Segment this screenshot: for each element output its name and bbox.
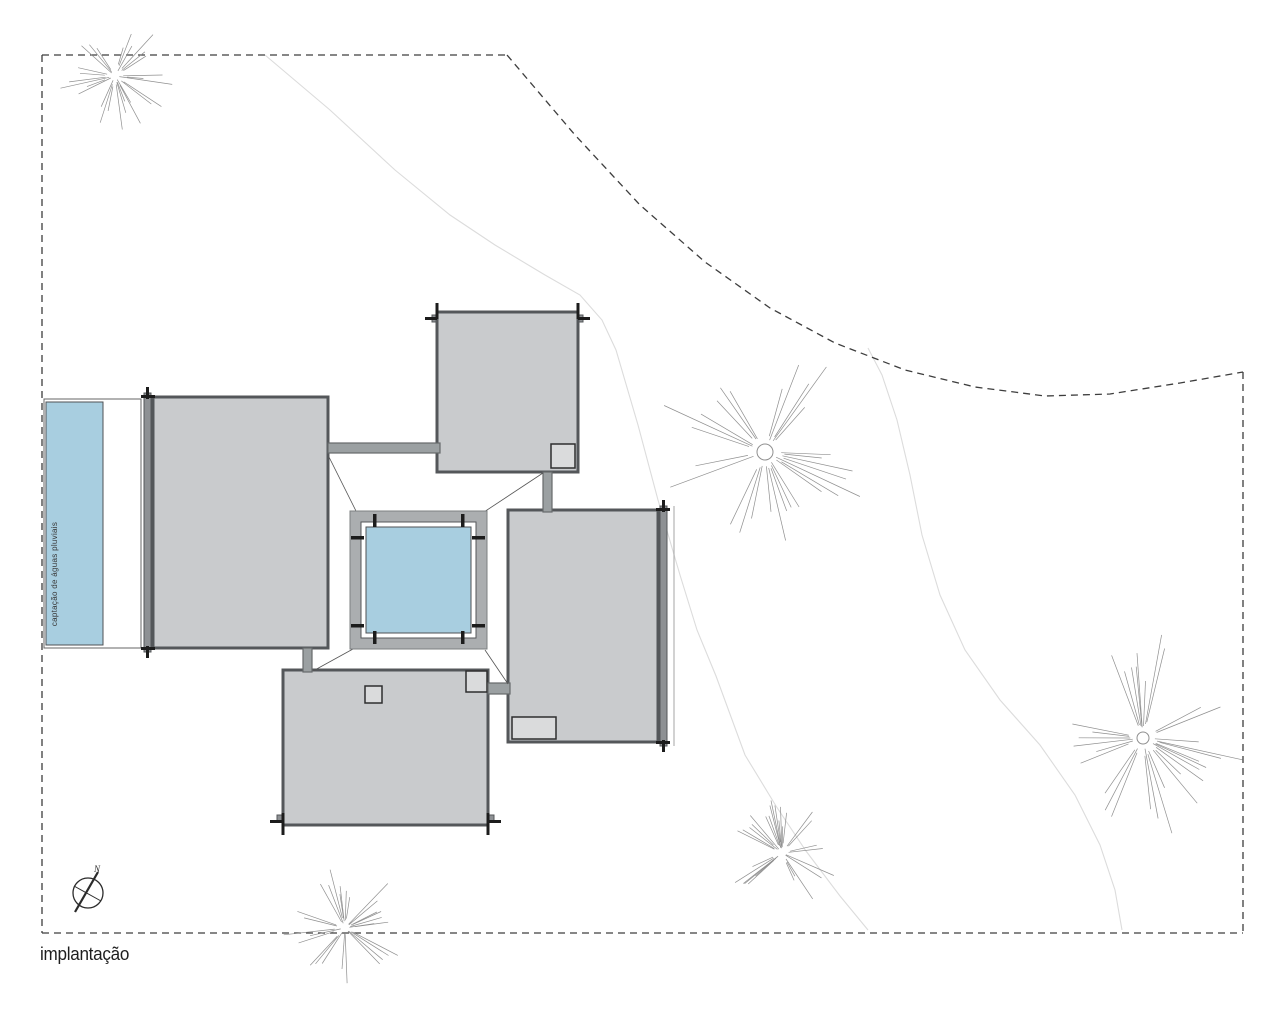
tree-frond xyxy=(790,845,817,851)
tree-frond xyxy=(123,75,162,76)
tree-frond xyxy=(1155,744,1206,768)
tree-frond xyxy=(720,388,756,439)
pool-post xyxy=(373,514,377,527)
tree-frond xyxy=(82,46,112,73)
tree-trunk xyxy=(757,444,773,460)
tree-frond xyxy=(299,932,334,943)
tree-frond xyxy=(730,469,756,524)
tree-frond xyxy=(349,931,383,960)
walkway xyxy=(328,443,440,453)
pool-post xyxy=(351,536,364,540)
building-roof xyxy=(508,510,658,742)
roof-edge-line xyxy=(329,457,356,511)
roof-beam xyxy=(660,506,667,746)
column-post xyxy=(487,813,490,835)
tree-frond xyxy=(348,931,380,964)
tree-frond xyxy=(1156,707,1201,731)
site-plan-drawing: captação de águas pluviais N xyxy=(0,0,1280,1024)
walkway xyxy=(488,683,510,694)
tree-frond xyxy=(701,414,753,445)
tree-frond xyxy=(355,922,388,926)
tree-frond xyxy=(670,456,753,487)
tree-frond xyxy=(100,84,112,122)
pool-post xyxy=(351,624,364,628)
pool-post xyxy=(461,631,465,644)
tree-frond xyxy=(1146,635,1162,724)
tree-frond xyxy=(322,933,342,964)
tree-frond xyxy=(752,466,763,519)
skylight-square xyxy=(466,671,487,692)
tree xyxy=(1072,635,1242,833)
tree xyxy=(664,365,860,541)
tree-frond xyxy=(353,932,398,956)
walkway xyxy=(543,472,552,512)
tree-frond xyxy=(345,934,347,983)
column-post xyxy=(146,646,149,658)
tree-frond xyxy=(1105,749,1137,811)
tree-frond xyxy=(119,77,172,85)
tree-frond xyxy=(743,830,775,849)
tree-frond xyxy=(782,826,783,847)
column-post xyxy=(146,387,149,399)
pool-post xyxy=(373,631,377,644)
tree-frond xyxy=(769,468,786,541)
tree-frond xyxy=(121,81,151,104)
building-roof xyxy=(283,670,488,825)
boundary-curve xyxy=(507,55,1243,396)
tree-frond xyxy=(738,831,775,849)
tree-frond xyxy=(664,406,752,447)
pool-post xyxy=(461,514,465,527)
column-post xyxy=(270,820,284,823)
column-post xyxy=(282,813,285,835)
tree-frond xyxy=(1156,747,1203,781)
skylight-square xyxy=(512,717,556,739)
tree-frond xyxy=(1148,754,1172,833)
column-post xyxy=(662,740,665,752)
building-pavilion-west xyxy=(141,387,328,658)
building-pavilion-east xyxy=(508,500,674,752)
tree-frond xyxy=(769,816,780,846)
tree-frond xyxy=(1144,681,1146,726)
tree-frond xyxy=(1105,750,1135,793)
tree-frond xyxy=(786,859,813,899)
plan-title: implantação xyxy=(40,944,129,965)
tree-frond xyxy=(696,455,748,465)
tree-frond xyxy=(345,891,346,920)
tree-frond xyxy=(717,401,752,439)
north-compass xyxy=(73,872,103,912)
column-post xyxy=(578,317,590,320)
tree-frond xyxy=(1156,743,1199,761)
pool-post xyxy=(472,624,485,628)
tree xyxy=(284,870,398,984)
column-post xyxy=(436,303,439,319)
tree-frond xyxy=(1147,649,1165,723)
tree-frond xyxy=(773,367,826,441)
tree-frond xyxy=(770,365,799,440)
tree-frond xyxy=(122,35,153,69)
tree-frond xyxy=(730,391,757,439)
building-pavilion-south xyxy=(270,670,501,835)
north-label: N xyxy=(93,864,101,874)
tree-trunk xyxy=(1137,732,1149,744)
column-post xyxy=(662,500,665,512)
central-pool-court xyxy=(350,511,487,649)
pool-water xyxy=(366,527,471,633)
tree-frond xyxy=(1132,667,1142,726)
tree-frond xyxy=(1157,707,1221,733)
tree-frond xyxy=(775,384,809,437)
tree-frond xyxy=(349,884,388,925)
tree-frond xyxy=(771,465,791,507)
tree-frond xyxy=(329,885,344,923)
tree-frond xyxy=(349,901,377,925)
roof-edge-line xyxy=(313,649,353,671)
skylight-square xyxy=(551,444,575,468)
tree-frond xyxy=(776,460,821,492)
column-post xyxy=(577,303,580,319)
tree-frond xyxy=(122,52,145,71)
tree-frond xyxy=(80,73,105,75)
tree-frond xyxy=(316,936,339,964)
tree-frond xyxy=(351,912,377,925)
tree-frond xyxy=(740,467,761,532)
tree xyxy=(735,801,834,899)
skylight-square xyxy=(365,686,382,703)
tree-frond xyxy=(1153,744,1199,770)
tree-frond xyxy=(1112,655,1139,725)
pool-post xyxy=(472,536,485,540)
tree-frond xyxy=(735,858,774,882)
tree-frond xyxy=(771,462,799,507)
tree-frond xyxy=(351,932,389,956)
tree xyxy=(61,34,173,130)
roof-beam xyxy=(144,393,151,652)
tree-frond xyxy=(1145,749,1158,819)
site-plan-canvas: captação de águas pluviais N implantação xyxy=(0,0,1280,1024)
building-roof xyxy=(153,397,328,648)
compass-circle xyxy=(73,878,103,908)
tree-frond xyxy=(297,911,336,925)
tree-frond xyxy=(1155,739,1199,742)
contour-line xyxy=(868,348,1122,930)
tree-frond xyxy=(1074,739,1133,746)
column-post xyxy=(487,820,501,823)
tree-frond xyxy=(766,466,771,512)
walkway xyxy=(303,648,312,672)
tree-frond xyxy=(1081,744,1129,763)
tree-frond xyxy=(346,897,349,918)
tree-frond xyxy=(1072,724,1128,735)
roof-edge-line xyxy=(484,473,543,512)
tree-frond xyxy=(89,45,111,72)
column-post xyxy=(425,317,437,320)
tree-frond xyxy=(1112,753,1138,817)
tree-frond xyxy=(770,806,781,848)
tree-frond xyxy=(342,934,345,969)
tree-frond xyxy=(743,856,778,883)
water-strip-annotation: captação de águas pluviais xyxy=(50,522,59,626)
tree-frond xyxy=(692,427,749,446)
